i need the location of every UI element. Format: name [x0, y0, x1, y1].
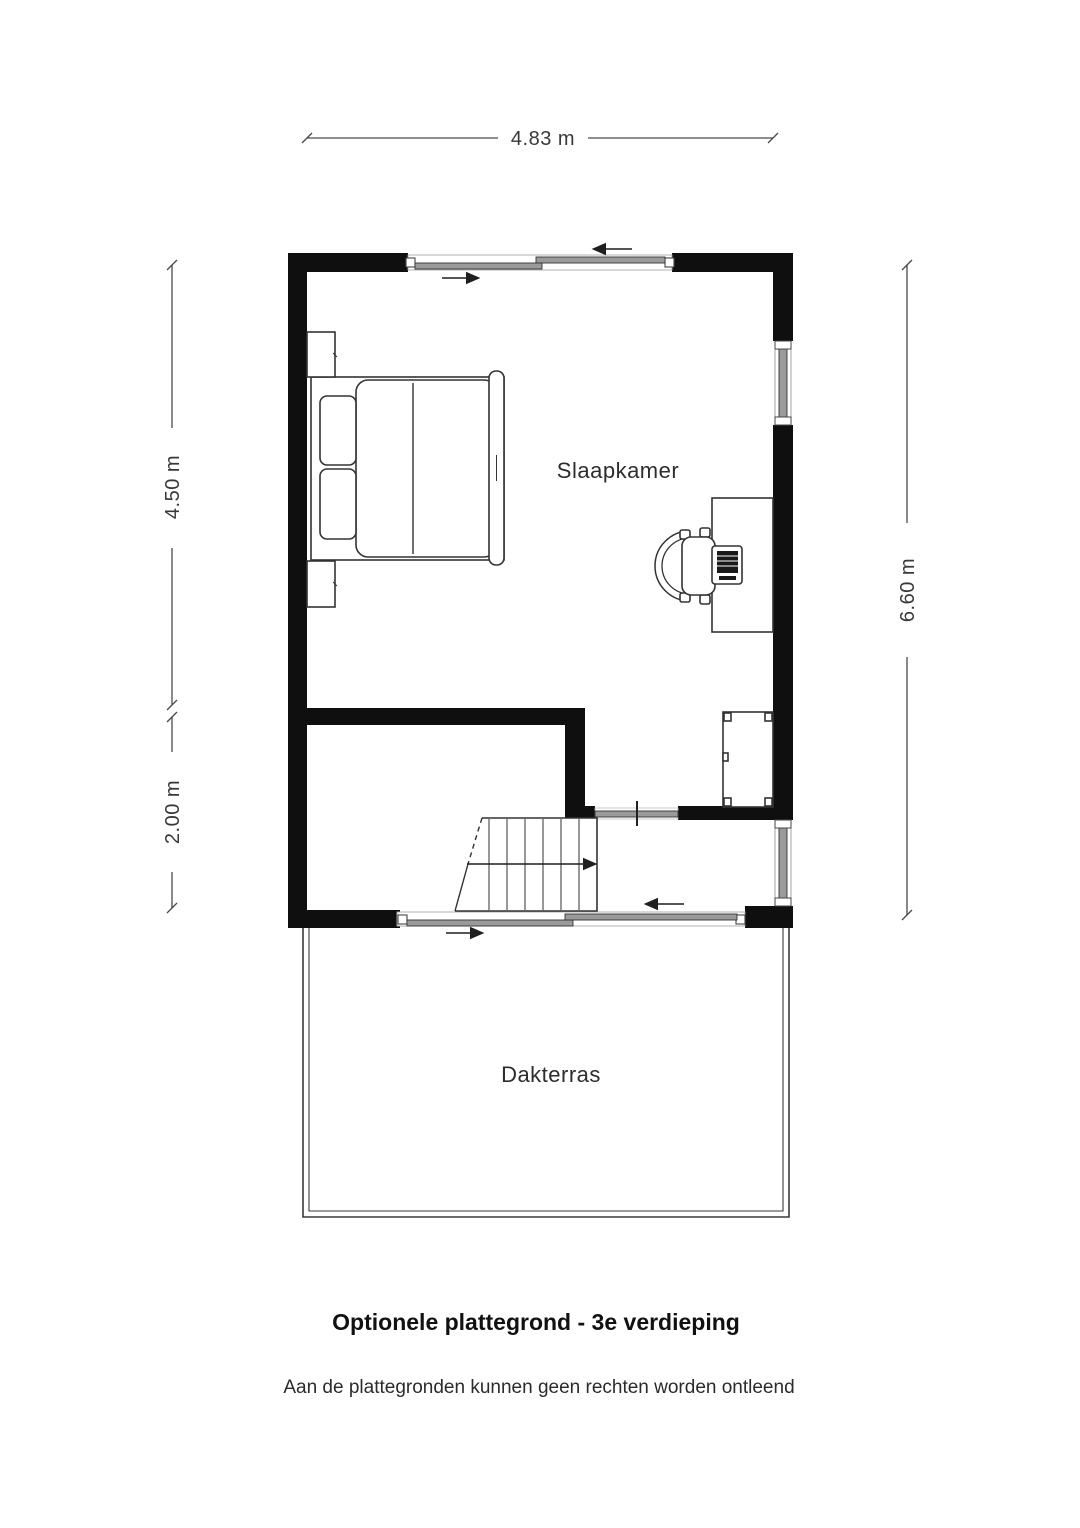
chair-armrest — [700, 595, 710, 604]
sliding-door-interior — [595, 801, 678, 826]
window-jamb — [775, 820, 791, 828]
plan-disclaimer: Aan de plattegronden kunnen geen rechten… — [283, 1377, 794, 1398]
wall-bedroom-hall-right — [678, 806, 793, 820]
window-right-upper — [775, 341, 791, 425]
desk-workspace — [655, 498, 773, 632]
office-chair-seat — [682, 537, 715, 595]
closet — [723, 712, 773, 807]
interior-wall-vertical — [565, 708, 585, 806]
dimension-label-hall-height: 2.00 m — [162, 780, 184, 844]
door-jamb — [665, 258, 674, 267]
pillow — [320, 469, 356, 539]
dimension-right: 6.60 m — [897, 260, 919, 920]
door-jamb — [406, 258, 415, 267]
laptop-keyboard — [717, 551, 738, 573]
plan-title: Optionele plattegrond - 3e verdieping — [332, 1309, 740, 1335]
interior-wall-horizontal — [300, 708, 575, 725]
dimension-top: 4.83 m — [302, 128, 778, 150]
nightstand — [307, 561, 335, 607]
window-glass — [779, 349, 787, 417]
stairs — [455, 818, 597, 911]
exterior-wall-right-mid — [773, 425, 793, 806]
floorplan-svg: 4.83 m 4.50 m 2.00 m 6.60 m Slaapkamer D… — [0, 0, 1080, 1528]
room-label-dakterras: Dakterras — [501, 1062, 601, 1087]
door-pane — [536, 257, 665, 263]
closet-handle — [723, 753, 728, 761]
exterior-wall-bottom-left — [288, 910, 400, 928]
floorplan-page: 4.83 m 4.50 m 2.00 m 6.60 m Slaapkamer D… — [0, 0, 1080, 1528]
dimension-left-upper: 4.50 m — [162, 260, 184, 710]
bed — [311, 371, 504, 565]
window-jamb — [775, 341, 791, 349]
door-jamb — [398, 915, 407, 924]
dimension-label-total-height: 6.60 m — [897, 558, 919, 622]
exterior-wall-left — [288, 253, 307, 928]
chair-armrest — [700, 528, 710, 537]
door-pane — [407, 920, 573, 926]
pillow — [320, 396, 356, 465]
sliding-door-top — [406, 249, 674, 278]
bed-duvet — [356, 380, 496, 557]
door-pane — [565, 914, 737, 920]
window-jamb — [775, 417, 791, 425]
dimension-left-lower: 2.00 m — [162, 712, 184, 913]
dimension-label-bedroom-height: 4.50 m — [162, 455, 184, 519]
exterior-wall-bottom-right-block — [745, 906, 793, 928]
window-glass — [779, 828, 787, 898]
closet-corner — [724, 713, 731, 721]
closet-body — [723, 712, 773, 807]
nightstand — [307, 332, 335, 377]
dimension-label-width: 4.83 m — [511, 128, 575, 150]
window-right-lower — [775, 820, 791, 906]
closet-corner — [765, 798, 772, 806]
door-pane — [415, 263, 542, 269]
interior-wall-foot — [565, 806, 595, 818]
exterior-wall-right-upper — [773, 253, 793, 341]
closet-corner — [765, 713, 772, 721]
closet-corner — [724, 798, 731, 806]
room-label-slaapkamer: Slaapkamer — [557, 458, 679, 483]
laptop-touchpad — [719, 576, 736, 580]
window-jamb — [775, 898, 791, 906]
